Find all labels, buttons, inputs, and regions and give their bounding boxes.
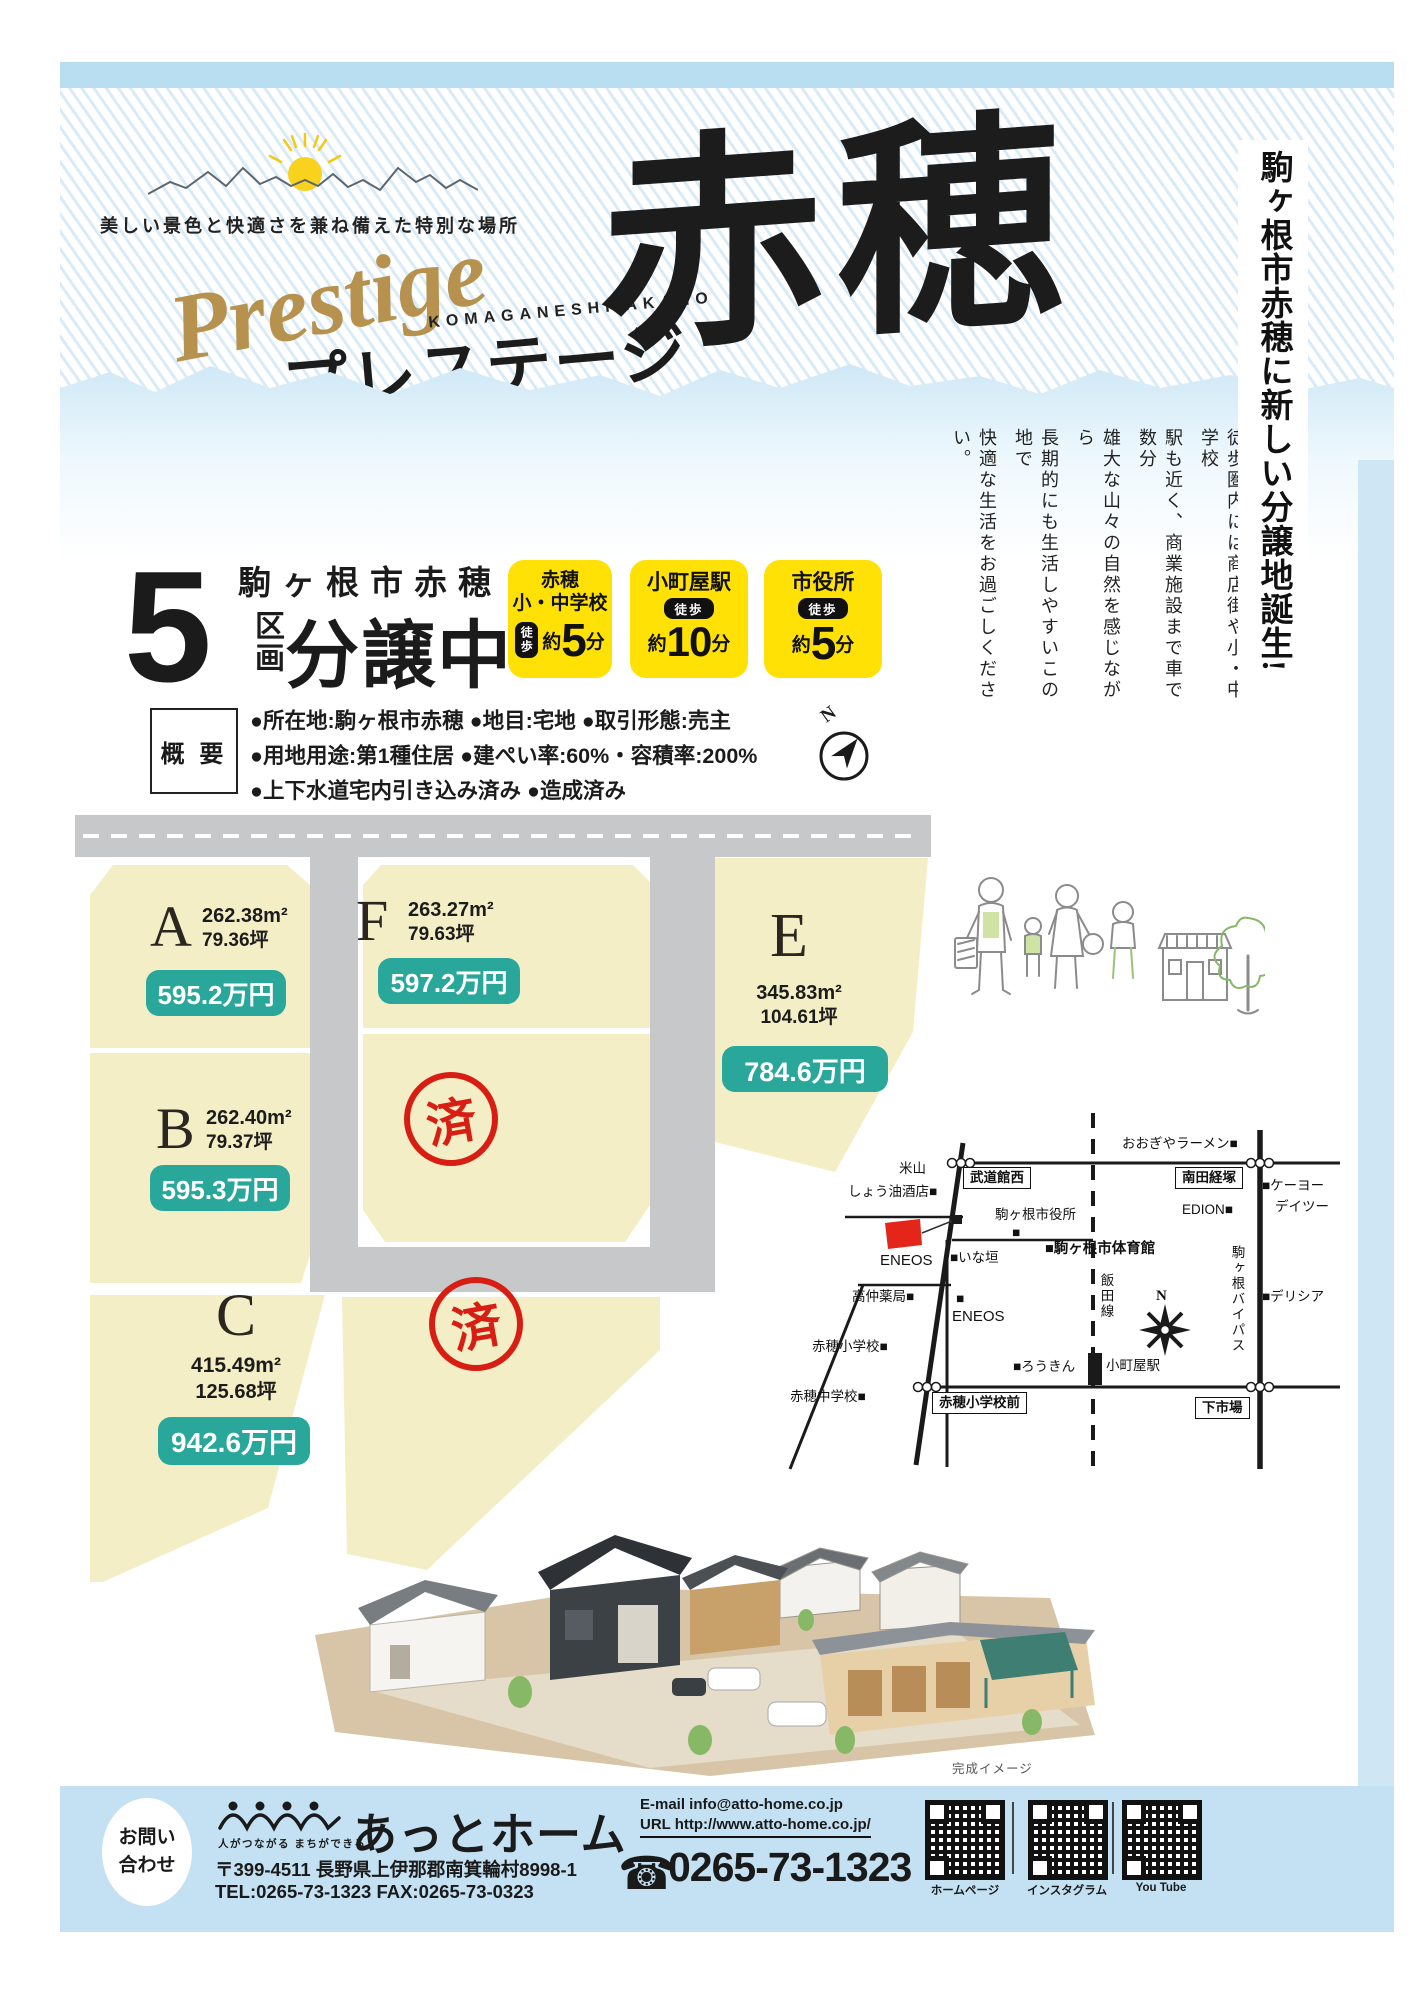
company-address: 〒399-4511 長野県上伊那郡南箕輪村8998-1 bbox=[215, 1856, 577, 1882]
lot-c-letter: C bbox=[196, 1285, 276, 1345]
inquiry-badge: お問い 合わせ bbox=[102, 1798, 192, 1906]
people-chain-logo-icon bbox=[215, 1794, 345, 1834]
map-label: ■ケーヨー bbox=[1262, 1177, 1324, 1195]
badge-name2: 小・中学校 bbox=[508, 593, 612, 616]
map-label: 小町屋駅 bbox=[1106, 1357, 1160, 1375]
access-badge-cityhall: 市役所 徒歩 約 5 分 bbox=[764, 560, 882, 678]
divider bbox=[1012, 1802, 1014, 1874]
phone-number: 0265-73-1323 bbox=[668, 1844, 911, 1891]
map-label: EDION■ bbox=[1182, 1201, 1233, 1219]
map-label: 飯田線 bbox=[1097, 1273, 1115, 1320]
map-label: おおぎやラーメン■ bbox=[1122, 1135, 1238, 1153]
right-blue-edge bbox=[1358, 445, 1394, 1786]
vertical-headline: 駒ヶ根市赤穂に新しい分譲地誕生! bbox=[1238, 140, 1308, 706]
sale-status: 分譲中 bbox=[285, 596, 513, 703]
map-label: ■いな垣 bbox=[950, 1249, 999, 1267]
intro-col: 駅も近く、商業施設まで車で数分 bbox=[1134, 428, 1186, 718]
lot-b-area: 262.40m² 79.37坪 bbox=[206, 1105, 292, 1156]
qr-code-homepage bbox=[925, 1800, 1005, 1880]
badge-name: 赤穂 bbox=[508, 570, 612, 593]
badge-name: 市役所 bbox=[764, 570, 882, 595]
lot-c-area: 415.49m² 125.68坪 bbox=[152, 1352, 320, 1405]
map-label: 米山 bbox=[860, 1160, 965, 1178]
map-label: 武道館西 bbox=[963, 1167, 1031, 1189]
lot-f-price: 597.2万円 bbox=[378, 958, 520, 1004]
map-compass-north: N bbox=[1156, 1287, 1167, 1307]
phone-icon: ☎ bbox=[618, 1846, 675, 1900]
map-label: 赤穂小学校■ bbox=[812, 1338, 888, 1356]
render-caption: 完成イメージ bbox=[952, 1758, 1033, 1777]
family-illustration bbox=[945, 860, 1265, 1095]
top-blue-strip bbox=[60, 62, 1394, 88]
website-url: URL http://www.atto-home.co.jp/ bbox=[640, 1816, 871, 1838]
qr-label: You Tube bbox=[1106, 1882, 1216, 1894]
walk-pill: 徒歩 bbox=[515, 622, 538, 658]
lot-a-letter: A bbox=[150, 898, 192, 956]
map-label: 駒ヶ根バイパス bbox=[1228, 1245, 1246, 1354]
flyer-page: 美しい景色と快適さを兼ね備えた特別な場所 Prestige KOMAGANESH… bbox=[0, 0, 1414, 2000]
intro-col: 長期的にも生活しやすいこの地で bbox=[1010, 428, 1062, 718]
lot-a-area: 262.38m² 79.36坪 bbox=[202, 903, 288, 954]
intro-col: 快適な生活をお過ごしください。 bbox=[948, 428, 1000, 718]
qr-label: ホームページ bbox=[910, 1882, 1020, 1898]
lot-e-price: 784.6万円 bbox=[722, 1046, 888, 1092]
map-label: 南田経塚 bbox=[1175, 1167, 1243, 1189]
property-marker bbox=[885, 1219, 922, 1249]
logo-tagline: 人がつながる まちができる bbox=[218, 1836, 366, 1851]
map-label: 赤穂中学校■ bbox=[790, 1388, 866, 1406]
map-label: 下市場 bbox=[1195, 1397, 1250, 1419]
sale-unit: 区画 bbox=[244, 610, 288, 674]
map-marker-square: ■ bbox=[956, 1290, 964, 1308]
divider bbox=[1112, 1802, 1114, 1874]
map-label: ENEOS bbox=[880, 1251, 933, 1271]
company-name: あっとホーム bbox=[352, 1798, 627, 1863]
intro-col: 雄大な山々の自然を感じながら bbox=[1072, 428, 1124, 718]
qr-code-instagram bbox=[1028, 1800, 1108, 1880]
lot-e-letter: E bbox=[770, 905, 808, 967]
overview-details: ●所在地:駒ヶ根市赤穂 ●地目:宅地 ●取引形態:売主 ●用地用途:第1種住居 … bbox=[250, 704, 757, 809]
badge-name: 小町屋駅 bbox=[630, 570, 748, 595]
map-label: デイツー bbox=[1275, 1198, 1329, 1216]
map-label: ■ろうきん bbox=[1013, 1358, 1075, 1376]
map-label: 駒ヶ根市役所 bbox=[995, 1206, 1076, 1224]
map-label: しょう油酒店■ bbox=[848, 1183, 937, 1201]
lot-a-price: 595.2万円 bbox=[146, 970, 286, 1016]
lot-count: 5 bbox=[124, 548, 212, 706]
overview-label-box: 概 要 bbox=[150, 708, 238, 794]
tel-fax: TEL:0265-73-1323 FAX:0265-73-0323 bbox=[215, 1881, 534, 1903]
map-label: 高仲薬局■ bbox=[852, 1288, 914, 1306]
lot-e-area: 345.83m² 104.61坪 bbox=[715, 980, 883, 1031]
mountains-sun-illustration bbox=[148, 128, 478, 208]
access-map: 米山 しょう油酒店■ 武道館西 おおぎやラーメン■ 南田経塚 ■ケーヨー デイツ… bbox=[770, 1105, 1355, 1473]
station-marker bbox=[1088, 1353, 1102, 1385]
map-label: ■デリシア bbox=[1262, 1288, 1324, 1306]
lot-b-letter: B bbox=[156, 1100, 195, 1158]
access-badge-station: 小町屋駅 徒歩 約 10 分 bbox=[630, 560, 748, 678]
walk-pill: 徒歩 bbox=[664, 598, 713, 619]
map-marker-square: ■ bbox=[1012, 1224, 1020, 1242]
map-label: ■駒ヶ根市体育館 bbox=[1045, 1240, 1155, 1259]
lot-b-price: 595.3万円 bbox=[150, 1165, 290, 1211]
sold-stamp: 済 bbox=[429, 1277, 523, 1371]
compass-north-label: N bbox=[817, 702, 841, 728]
access-badge-school: 赤穂 小・中学校 徒歩 約 5 分 bbox=[508, 560, 612, 678]
completed-image-render bbox=[220, 1440, 1120, 1780]
map-compass-star bbox=[1139, 1304, 1191, 1356]
qr-code-youtube bbox=[1122, 1800, 1202, 1880]
compass-icon bbox=[816, 728, 872, 784]
sold-stamp: 済 bbox=[404, 1072, 498, 1166]
lot-f-area: 263.27m² 79.63坪 bbox=[408, 897, 494, 948]
footer-contact-band: お問い 合わせ 人がつながる まちができる あっとホーム 〒399-4511 長… bbox=[60, 1786, 1394, 1932]
walk-pill: 徒歩 bbox=[798, 598, 847, 619]
map-label: ENEOS bbox=[952, 1307, 1005, 1327]
email: E-mail info@atto-home.co.jp bbox=[640, 1796, 843, 1813]
map-label: 赤穂小学校前 bbox=[932, 1392, 1027, 1414]
lot-f-letter: F bbox=[356, 892, 388, 950]
